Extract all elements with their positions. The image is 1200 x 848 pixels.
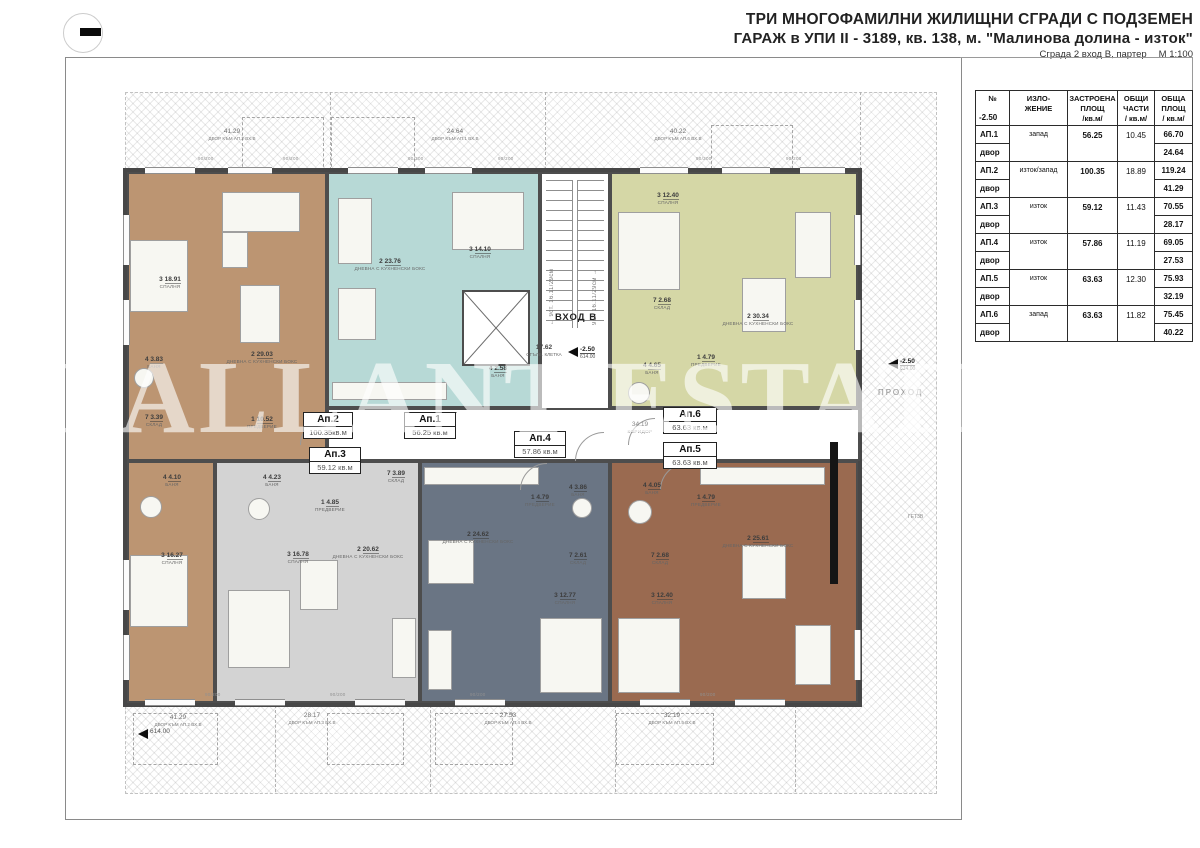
room-label: 3 14.10СПАЛНЯ	[440, 246, 520, 259]
yard-label: 28.17ДВОР КЪМ АП.3 ВХ.В	[262, 712, 362, 726]
room-label: 4 2.58БАНЯ	[458, 365, 538, 378]
furniture-sofa	[428, 630, 452, 690]
level-marker-yard: 614.00	[138, 728, 170, 739]
room-label: 3 12.77СПАЛНЯ	[525, 592, 605, 605]
furniture-kitchen	[332, 382, 447, 400]
room-label: 3 12.40СПАЛНЯ	[628, 192, 708, 205]
window	[854, 300, 861, 350]
col-built-area: ЗАСТРОЕНА ПЛОЩ /кв.м/	[1068, 91, 1118, 126]
window	[640, 167, 688, 174]
terrace-outline	[242, 117, 324, 172]
opening-mark: 90/200	[498, 156, 514, 161]
furniture-sofa	[795, 212, 831, 278]
window	[722, 167, 770, 174]
furniture-table	[240, 285, 280, 343]
yard-divider	[615, 705, 616, 792]
title-line1: ТРИ МНОГОФАМИЛНИ ЖИЛИЩНИ СГРАДИ С ПОДЗЕМ…	[560, 11, 1193, 30]
stair-flight-note-left: ← 9ст. 16.11/29см	[549, 195, 555, 325]
window	[355, 699, 405, 706]
table-row: АП.1запад56.2510.4566.70	[976, 126, 1193, 144]
room-label: 1 4.85ПРЕДВЕРИЕ	[290, 499, 370, 512]
furniture-sofa	[795, 625, 831, 685]
furniture-bed	[130, 555, 188, 627]
furniture-sofa	[392, 618, 416, 678]
room-label: 3 12.40СПАЛНЯ	[622, 592, 702, 605]
side-note: ГЕТ3В	[908, 514, 923, 520]
level-marker-passage: -2.50 614.00	[888, 358, 915, 373]
furniture-table	[338, 288, 376, 340]
room-label: 7 2.68СКЛАД	[622, 297, 702, 310]
room-label: 4 3.86БАНЯ	[538, 484, 618, 497]
furniture-bed	[618, 618, 680, 693]
opening-mark: 90/200	[786, 156, 802, 161]
window	[145, 699, 195, 706]
room-label: 1 4.79ПРЕДВЕРИЕ	[666, 494, 746, 507]
furniture-sink	[628, 382, 650, 404]
furniture-bed	[452, 192, 524, 250]
room-label: 2 29.03ДНЕВНА С КУХНЕНСКИ БОКС	[222, 351, 302, 364]
room-label: 7 3.39СКЛАД	[114, 414, 194, 427]
opening-mark: 90/200	[700, 692, 716, 697]
col-common-parts: ОБЩИ ЧАСТИ / кв.м/	[1118, 91, 1155, 126]
window	[123, 560, 130, 610]
room-label: 3 18.91СПАЛНЯ	[130, 276, 210, 289]
opening-mark: 90/200	[470, 692, 486, 697]
logo-dash-icon	[80, 28, 101, 36]
table-row: АП.5изток63.6312.3075.93	[976, 270, 1193, 288]
title-line2: ГАРАЖ в УПИ II - 3189, кв. 138, м. "Мали…	[560, 30, 1193, 48]
room-label: 4 4.23БАНЯ	[232, 474, 312, 487]
entrance-label: ВХОД В	[541, 312, 611, 323]
opening-mark: 90/200	[283, 156, 299, 161]
furniture-sofa	[222, 232, 248, 268]
room-label: 7 3.89СКЛАД	[356, 470, 436, 483]
subtitle: Сграда 2 вход В, партер	[1040, 49, 1147, 60]
furniture-kitchen	[700, 467, 825, 485]
retaining-wall	[830, 442, 838, 584]
furniture-table	[428, 540, 474, 584]
yard-label: 41.29ДВОР КЪМ АП.2 ВХ.В	[128, 714, 228, 728]
window	[640, 699, 690, 706]
room-label: 1 4.79ПРЕДВЕРИЕ	[666, 354, 746, 367]
furniture-sink	[628, 500, 652, 524]
stair-flight-note-right: 9ст. 16.11/29см →	[592, 195, 598, 325]
furniture-bed	[618, 212, 680, 290]
opening-mark: 90/200	[205, 692, 221, 697]
passage-label: ПРОХОД	[878, 388, 934, 397]
table-header-row: №-2.50 ИЗЛО- ЖЕНИЕ ЗАСТРОЕНА ПЛОЩ /кв.м/…	[976, 91, 1193, 126]
furniture-sofa	[338, 198, 372, 264]
window	[235, 699, 285, 706]
furniture-sink	[134, 368, 154, 388]
terrace-outline	[331, 117, 415, 172]
table-row: АП.6запад63.6311.8275.45	[976, 306, 1193, 324]
yard-divider	[430, 705, 431, 792]
window	[348, 167, 398, 174]
room-label: 2 23.76ДНЕВНА С КУХНЕНСКИ БОКС	[350, 258, 430, 271]
opening-mark: 90/200	[408, 156, 424, 161]
room-label: 3 16.27СПАЛНЯ	[132, 552, 212, 565]
level-marker-stair: -2.50 614.00	[568, 346, 595, 361]
furniture-bed	[228, 590, 290, 668]
window	[123, 300, 130, 345]
table-row: АП.2изток/запад100.3518.89119.24	[976, 162, 1193, 180]
sheet-divider-line	[960, 57, 1193, 58]
window	[123, 215, 130, 265]
window	[425, 167, 472, 174]
furniture-sink	[248, 498, 270, 520]
table-row: АП.3изток59.1211.4370.55	[976, 198, 1193, 216]
room-label: 4 3.83БАНЯ	[114, 356, 194, 369]
furniture-sofa	[222, 192, 300, 232]
window	[123, 635, 130, 680]
window	[735, 699, 785, 706]
apartment-tag-ap3: Ап.3 59.12 кв.м	[309, 447, 361, 474]
apartment-tag-ap4: Ап.4 57.86 кв.м	[514, 431, 566, 458]
room-label: 3 16.78СПАЛНЯ	[258, 551, 338, 564]
apartment-tag-ap5: Ап.5 63.63 кв.м	[663, 442, 717, 469]
room-label: 2 25.61ДНЕВНА С КУХНЕНСКИ БОКС	[718, 535, 798, 548]
level-value: -2.50	[979, 113, 1008, 123]
table-row: АП.4изток57.8611.1969.05	[976, 234, 1193, 252]
apartment-area-table: №-2.50 ИЗЛО- ЖЕНИЕ ЗАСТРОЕНА ПЛОЩ /кв.м/…	[975, 90, 1193, 342]
yard-divider	[545, 92, 546, 170]
room-label: 4 4.10БАНЯ	[132, 474, 212, 487]
room-label: 2 20.62ДНЕВНА С КУХНЕНСКИ БОКС	[328, 546, 408, 559]
opening-mark: 90/200	[696, 156, 712, 161]
apartment-tag-ap2: Ап.2 100.35кв.м	[303, 412, 353, 439]
yard-divider	[795, 705, 796, 792]
yard-label: 32.19ДВОР КЪМ АП.5 ВХ.В	[622, 712, 722, 726]
window	[800, 167, 845, 174]
furniture-sink	[140, 496, 162, 518]
room-label: 7 2.61СКЛАД	[538, 552, 618, 565]
furniture-table	[742, 545, 786, 599]
apartment-tag-ap1: Ап.1 56.25 кв.м	[404, 412, 456, 439]
room-label: 2 24.62ДНЕВНА С КУХНЕНСКИ БОКС	[438, 531, 518, 544]
col-total-area: ОБЩА ПЛОЩ / кв.м/	[1155, 91, 1193, 126]
elevation-flag-icon	[888, 359, 898, 369]
yard-divider	[330, 92, 331, 170]
elevation-flag-icon	[138, 729, 148, 739]
room-label: 1 10.52ПРЕДВЕРИЕ	[222, 416, 302, 429]
apartment-tag-ap6: Ап.6 63.63 кв.м	[663, 407, 717, 434]
window	[854, 630, 861, 680]
yard-label: 27.53ДВОР КЪМ АП.4 ВХ.В	[458, 712, 558, 726]
room-label: 2 30.34ДНЕВНА С КУХНЕНСКИ БОКС	[718, 313, 798, 326]
yard-label: 41.29ДВОР КЪМ АП.2 ВХ.В	[182, 128, 282, 142]
col-number: №-2.50	[976, 91, 1010, 126]
window	[455, 699, 505, 706]
window	[145, 167, 195, 174]
col-orientation: ИЗЛО- ЖЕНИЕ	[1010, 91, 1068, 126]
stairwell-label: 17.62 СТЪЛБ. КЛЕТКА	[516, 344, 572, 358]
title-block: ТРИ МНОГОФАМИЛНИ ЖИЛИЩНИ СГРАДИ С ПОДЗЕМ…	[560, 11, 1193, 61]
furniture-table	[300, 560, 338, 610]
opening-mark: 90/200	[198, 156, 214, 161]
drawing-sheet: ТРИ МНОГОФАМИЛНИ ЖИЛИЩНИ СГРАДИ С ПОДЗЕМ…	[0, 0, 1200, 848]
yard-label: 24.64ДВОР КЪМ АП.1 ВХ.В	[405, 128, 505, 142]
window	[228, 167, 272, 174]
elevation-flag-icon	[568, 347, 578, 357]
yard-divider	[860, 92, 861, 170]
opening-mark: 90/200	[330, 692, 346, 697]
drawing-scale: М 1:100	[1159, 49, 1193, 60]
stair-divider	[572, 180, 578, 328]
room-label: 7 2.68СКЛАД	[620, 552, 700, 565]
furniture-bed	[540, 618, 602, 693]
window	[854, 215, 861, 265]
yard-label: 40.22ДВОР КЪМ АП.6 ВХ.В	[628, 128, 728, 142]
